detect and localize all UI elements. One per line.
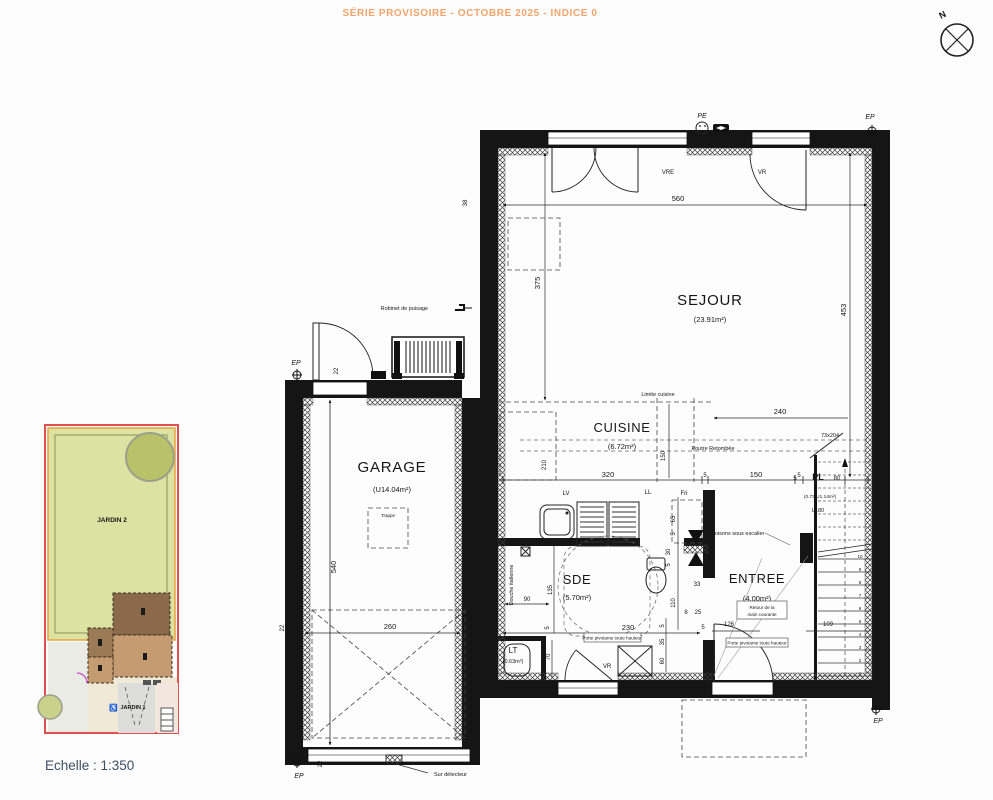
ep-label-bottom: EP xyxy=(873,718,883,725)
insulation-lining xyxy=(303,148,872,740)
dim-35: 35 xyxy=(660,638,666,645)
dim-8: 8 xyxy=(684,610,688,616)
dim-5: 5 xyxy=(545,626,551,630)
scale-label: Echelle : 1:350 xyxy=(45,758,134,773)
dim-33: 33 xyxy=(694,582,701,588)
wheelchair-icon: ♿ xyxy=(109,703,118,712)
dim-126: 126 xyxy=(724,622,735,628)
dim-5: 5 xyxy=(701,625,705,631)
stair-step-number: 7 xyxy=(859,593,862,598)
room-lt: LT xyxy=(509,646,518,655)
porte-pivotante-label-2: Porte pivotante toute hauteur xyxy=(727,641,787,646)
ep-symbols xyxy=(292,125,881,768)
dim-22: 22 xyxy=(334,367,340,374)
dim-230: 230 xyxy=(622,623,635,632)
heat-pump-unit xyxy=(392,337,464,379)
room-sejour: SEJOUR xyxy=(677,292,743,309)
dim-560: 560 xyxy=(672,194,685,203)
dim-80: 80 xyxy=(834,476,841,482)
dim-25: 25 xyxy=(695,610,702,616)
room-sde-area: (5.70m²) xyxy=(563,593,592,602)
stair-step-number: 10 xyxy=(857,554,863,559)
dim-240: 240 xyxy=(774,407,787,416)
room-garage-area: (U14.04m²) xyxy=(373,485,411,494)
wall-openings xyxy=(308,132,810,762)
stair-step-number: 3 xyxy=(859,645,862,650)
porte-pivotante-label-1: Porte pivotante toute hauteur xyxy=(582,636,642,641)
robinet-label: Robinet de puisage xyxy=(381,306,428,312)
dim-150: 150 xyxy=(750,470,763,479)
retour-label-line2: main courante xyxy=(747,612,777,617)
dim-5: 5 xyxy=(666,563,672,567)
stair-step-number: 6 xyxy=(859,606,862,611)
retour-label-line1: Retour de la xyxy=(749,605,774,610)
dim-135: 135 xyxy=(548,584,554,595)
stair-step-number: 4 xyxy=(859,632,862,637)
room-lt-area: (0.63m²) xyxy=(503,659,524,665)
toilet xyxy=(646,558,666,593)
tap-icon xyxy=(455,305,472,310)
dim-65: 65 xyxy=(671,515,677,522)
pl-door-size: 73x204 xyxy=(821,433,839,439)
stair-direction-arrow xyxy=(842,458,848,467)
stair-step-number: 9 xyxy=(859,567,862,572)
ep-label-garage-bottom: EP xyxy=(294,773,304,780)
poutre-label: Poutre Retombée xyxy=(691,446,734,452)
dim-150-v: 150 xyxy=(661,450,667,461)
stair-step-number: 8 xyxy=(859,580,862,585)
ll-label: LL xyxy=(645,490,652,496)
dim-5: 5 xyxy=(797,473,801,479)
floor-plan-drawing: N JARDIN 2 xyxy=(0,0,993,800)
lv-label: LV xyxy=(563,491,570,497)
room-entree: ENTREE xyxy=(729,571,785,586)
dim-210: 210 xyxy=(542,459,548,470)
room-pl-width: L180 xyxy=(812,508,824,514)
walls xyxy=(285,130,890,765)
vanity xyxy=(618,646,652,676)
room-sejour-area: (23.91m²) xyxy=(694,315,727,324)
tree-icon-small xyxy=(38,695,62,719)
dim-320: 320 xyxy=(602,470,615,479)
dim-38: 38 xyxy=(463,199,469,206)
kitchen-sink xyxy=(540,505,574,539)
douche-label: Douche italienne xyxy=(509,565,515,606)
dim-70: 70 xyxy=(546,653,552,660)
room-sde: SDE xyxy=(563,572,592,587)
stair-step-number: 2 xyxy=(859,658,862,663)
dim-90: 90 xyxy=(524,597,531,603)
trappe-label: Trappe xyxy=(381,513,396,518)
site-plan: JARDIN 2 ♿ JARDIN 1 xyxy=(38,425,178,733)
vr-label-top: VR xyxy=(758,170,767,176)
dim-109: 109 xyxy=(823,622,834,628)
jardin2-label: JARDIN 2 xyxy=(97,517,127,524)
dim-375: 375 xyxy=(533,277,542,290)
tree-icon xyxy=(126,433,174,481)
floor-plan-page: SÉRIE PROVISOIRE - OCTOBRE 2025 - INDICE… xyxy=(0,0,993,800)
vre-label: VRE xyxy=(662,170,674,176)
jardin1-label: JARDIN 1 xyxy=(120,705,145,711)
dim-30: 30 xyxy=(666,548,672,555)
dim-540: 540 xyxy=(329,561,338,574)
dimension-lines xyxy=(305,153,870,745)
dim-453: 453 xyxy=(839,304,848,317)
dim-60: 60 xyxy=(660,657,666,664)
dim-5: 5 xyxy=(660,624,666,628)
pe-label: PE xyxy=(697,113,707,120)
cloisons-label: Cloisons sous escalier xyxy=(710,531,765,537)
fri-label: Fri xyxy=(681,491,688,497)
vr-label-bottom: VR xyxy=(603,664,612,670)
limite-cuisine-label: Limite cuisine xyxy=(641,392,674,398)
room-cuisine-area: (6.72m²) xyxy=(608,442,637,451)
sur-detecteur-label: Sur détecteur xyxy=(434,772,467,778)
dim-22: 22 xyxy=(318,760,324,767)
ep-label-top: EP xyxy=(865,114,875,121)
dim-22: 22 xyxy=(280,624,286,631)
north-label: N xyxy=(937,9,947,21)
ep-label-garage: EP xyxy=(291,360,301,367)
dim-110: 110 xyxy=(671,598,677,608)
north-compass-icon: N xyxy=(937,9,973,56)
building-light xyxy=(113,635,172,677)
porch-outline xyxy=(682,700,806,757)
room-cuisine: CUISINE xyxy=(594,420,651,435)
room-pl: PL xyxy=(812,472,824,482)
room-pl-detail: (0.73 U1.14m²) xyxy=(804,494,837,500)
socket-icon xyxy=(521,547,530,556)
staircase: 1 2 3 4 5 6 7 8 9 10 xyxy=(818,458,872,676)
vent-icon xyxy=(371,371,386,379)
dim-5: 5 xyxy=(703,473,707,479)
stair-step-number: 5 xyxy=(859,619,862,624)
dim-260: 260 xyxy=(384,622,397,631)
room-garage: GARAGE xyxy=(358,459,427,476)
